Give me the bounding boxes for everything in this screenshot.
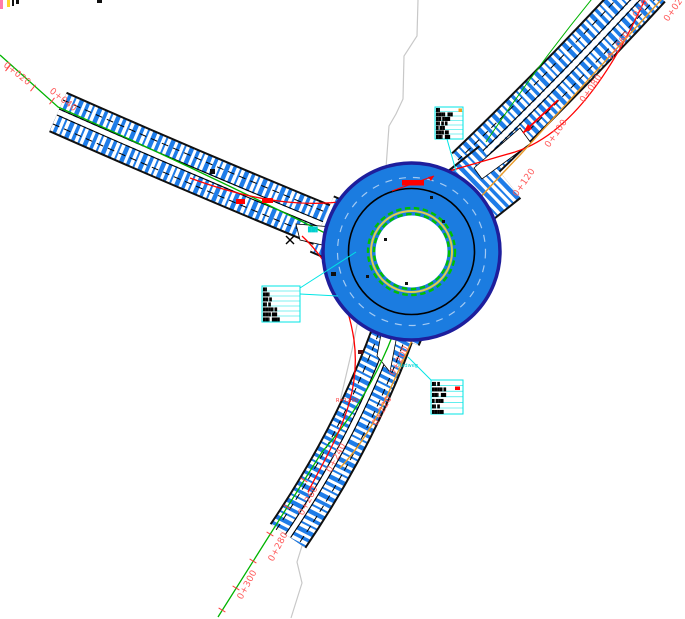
- callout-1-orange-chip: [459, 109, 463, 113]
- plan-canvas: 0+020 0+040 0+120 0+100 0+080 0+060 0+04…: [0, 0, 685, 619]
- callout-3-red-chip: [455, 387, 460, 391]
- station-tick: [31, 85, 36, 91]
- callout-text-row: █▌█: [431, 403, 440, 408]
- callout-text-row: █▌█: [262, 302, 271, 307]
- callout-text-row: █ ██: [435, 125, 445, 130]
- red-text-mark: [236, 199, 245, 204]
- black-survey-dot: [331, 272, 336, 276]
- station-label: 0+120: [511, 167, 538, 199]
- callout-text-row: ███▌ ██: [435, 111, 453, 116]
- callout-text-row: ████ █: [431, 387, 447, 392]
- red-text-mark: [262, 198, 273, 203]
- callout-text-row: ██▌ ██: [431, 392, 447, 397]
- roundabout-plan: 0+020 0+040 0+120 0+100 0+080 0+060 0+04…: [0, 0, 685, 619]
- road-arm-northeast: [458, 0, 658, 199]
- small-cyan-note: ██▌: [307, 226, 320, 233]
- black-survey-dot: [358, 350, 363, 354]
- callout-text-row: ██▌: [262, 292, 271, 297]
- callout-text-row: █▌█: [431, 381, 440, 386]
- ring-marker: [366, 275, 369, 278]
- red-dimension-text-block: [402, 180, 424, 186]
- callout-box-3: █▌█ ████ █ ██▌ ██ █ ███ █▌█ ████▌: [408, 357, 463, 414]
- ring-marker: [405, 282, 408, 285]
- yellow-mark: [7, 0, 10, 7]
- callout-text-row: ████ █: [262, 307, 278, 312]
- callout-text-row: ████▌: [431, 409, 445, 414]
- pink-mark: [0, 0, 3, 9]
- callout-text-row: ██▌ ███: [262, 317, 280, 322]
- callout-text-row: ███ █▌: [435, 129, 450, 134]
- ring-marker: [442, 220, 445, 223]
- station-label: 0+020: [1, 60, 32, 88]
- callout-text-row: ██ █: [262, 297, 272, 302]
- black-mark: [12, 0, 14, 6]
- black-mark: [97, 0, 102, 3]
- callout-text-row: ██ ███: [435, 116, 451, 121]
- central-island: [376, 216, 448, 288]
- callout-text-row: ███ ██: [262, 312, 278, 317]
- callout-text-row: █▌: [435, 107, 441, 112]
- station-label: 0+020: [662, 0, 685, 24]
- edge-clipped-marks: [0, 0, 102, 9]
- callout-text-row: █▌: [262, 287, 268, 292]
- callout-text-row: █ ███: [431, 398, 444, 403]
- black-survey-dot: [210, 169, 215, 174]
- radius-note: R=12.00: [336, 398, 358, 404]
- ring-marker: [384, 238, 387, 241]
- callout-text-row: █▌█ █: [435, 120, 448, 125]
- roundabout: [323, 163, 500, 340]
- callout-text-row: ██▌ ██: [435, 134, 451, 139]
- ring-marker: [430, 196, 433, 199]
- station-label: 0+300: [236, 569, 260, 602]
- station-label: 0+280: [267, 531, 291, 564]
- black-mark: [16, 0, 19, 4]
